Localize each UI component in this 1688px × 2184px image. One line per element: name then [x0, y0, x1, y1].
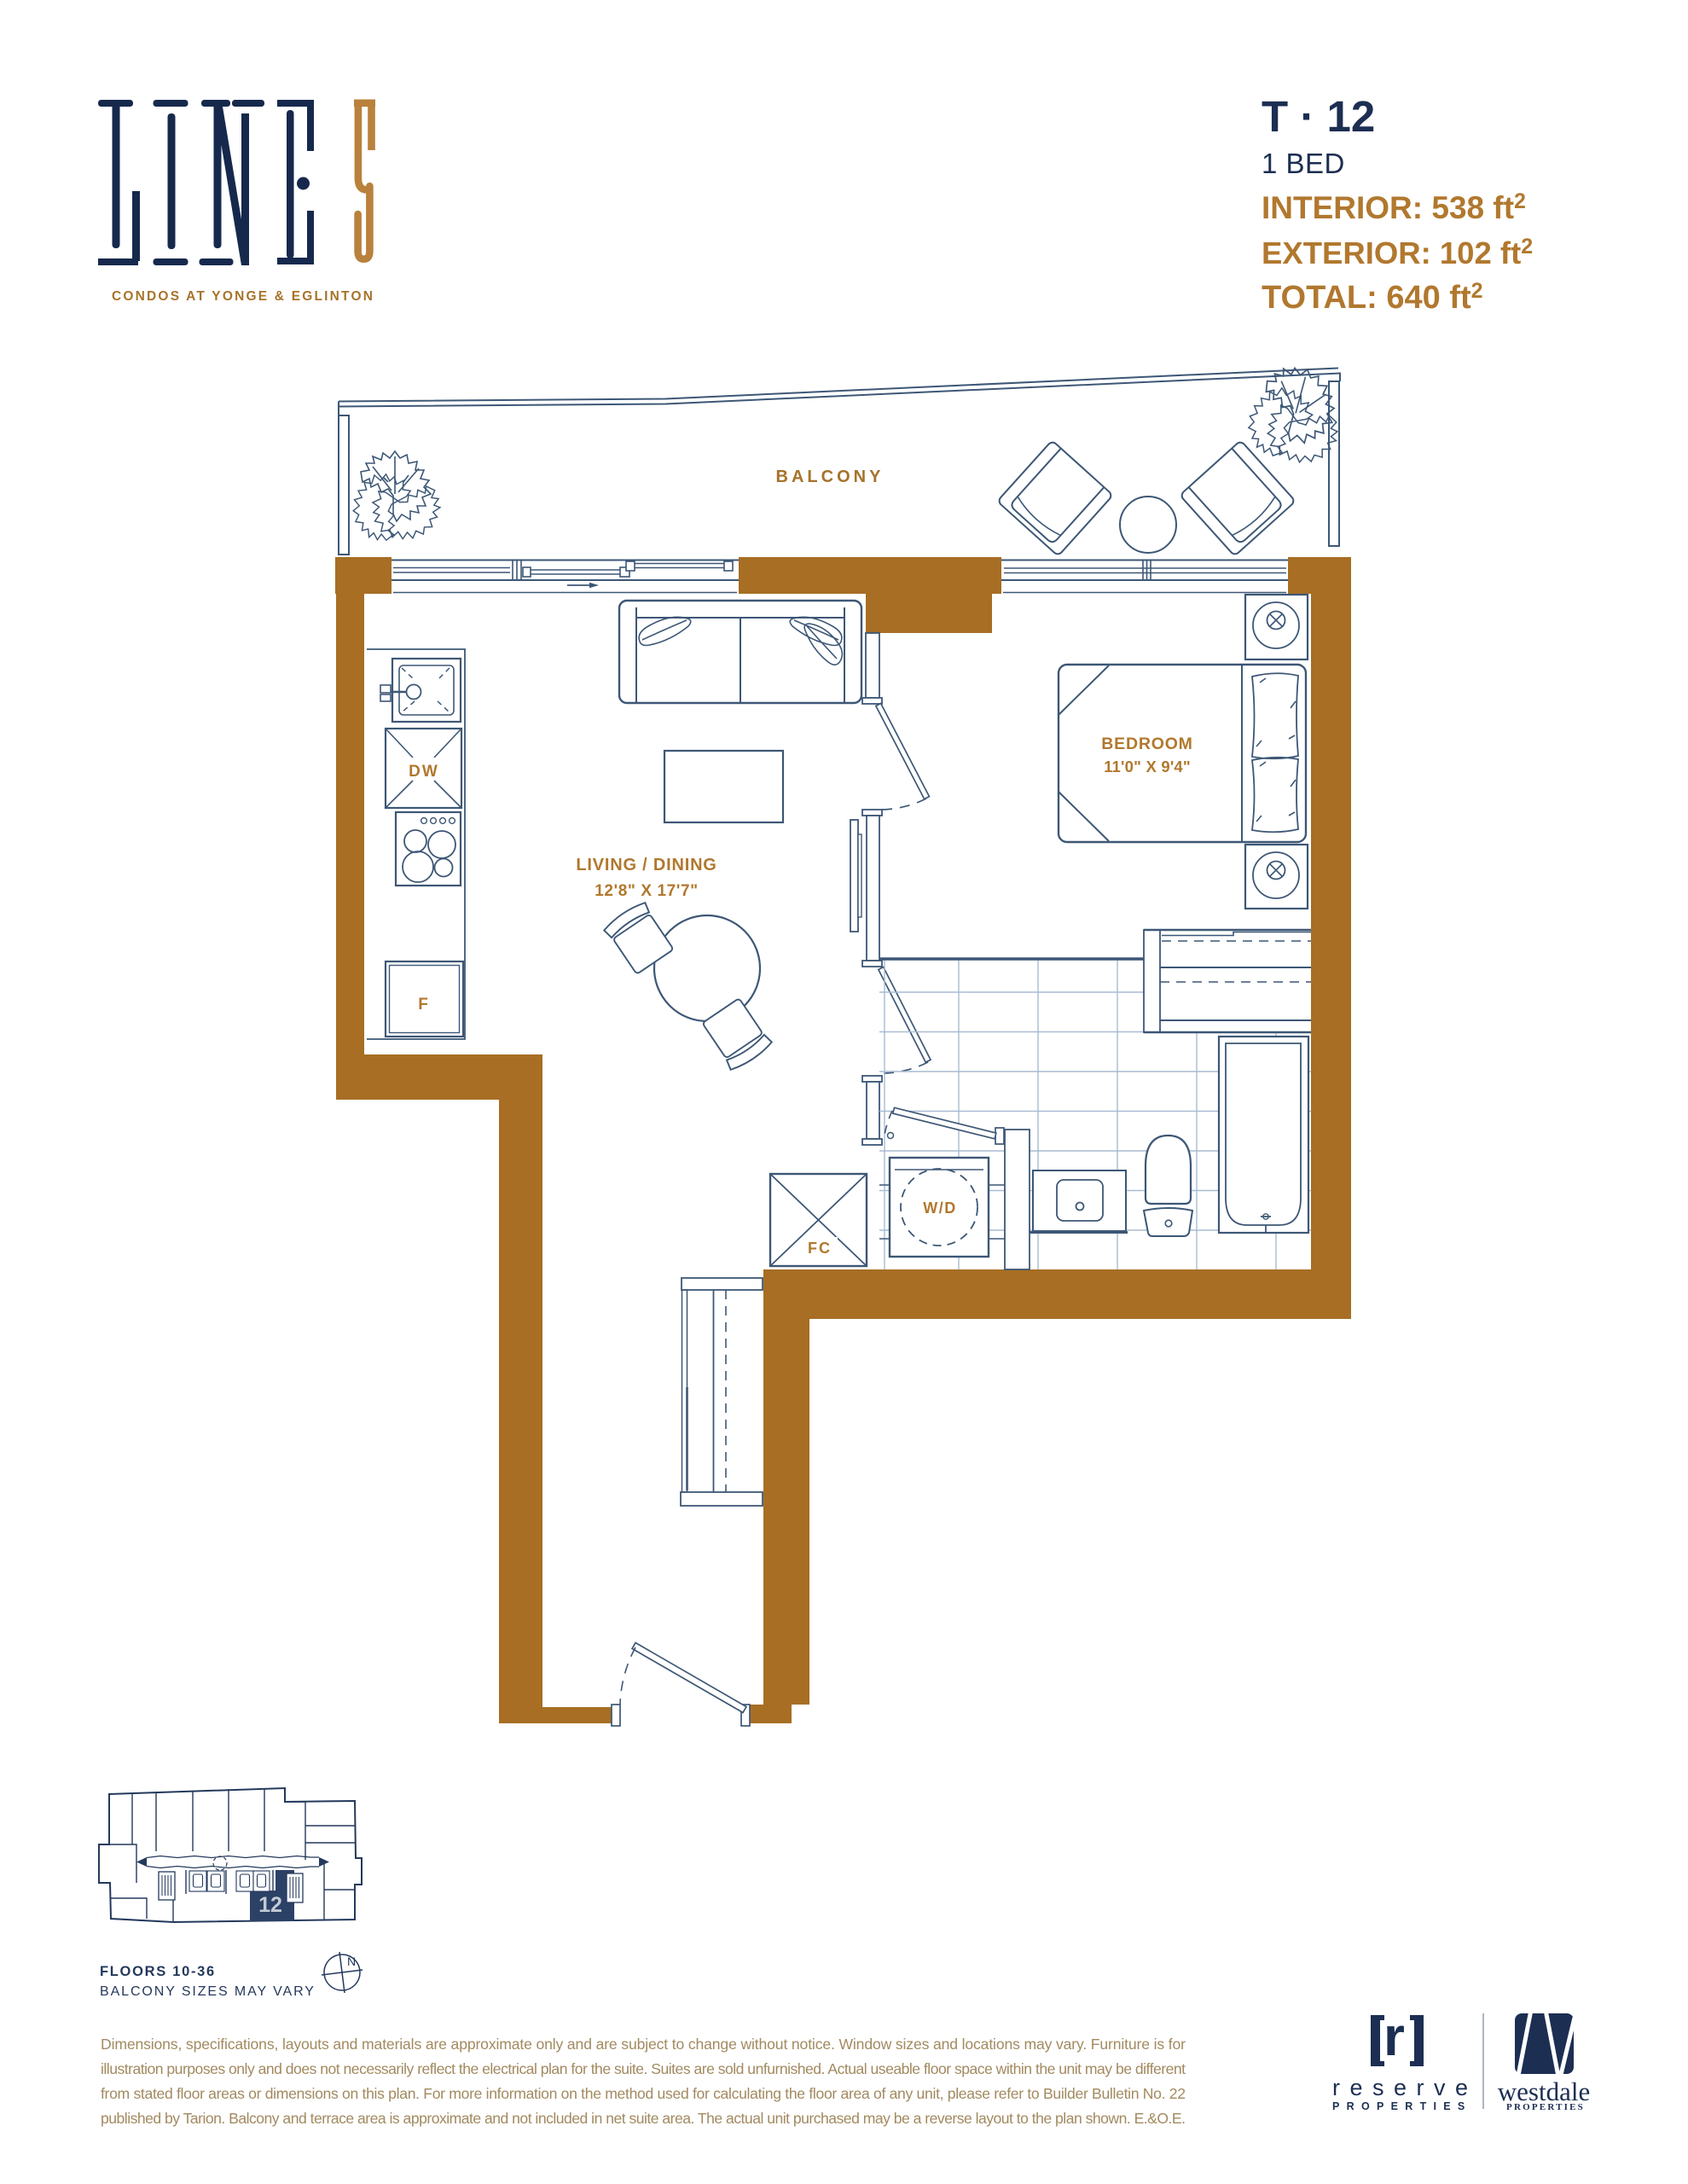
svg-text:Dimensions, specifications, la: Dimensions, specifications, layouts and … — [101, 2036, 1186, 2053]
svg-text:illustration purposes only and: illustration purposes only and does not … — [101, 2060, 1186, 2077]
svg-text:published by Tarion. Balcony a: published by Tarion. Balcony and terrace… — [101, 2110, 1186, 2127]
svg-text:from stated floor areas or dim: from stated floor areas or dimensions on… — [101, 2085, 1186, 2102]
